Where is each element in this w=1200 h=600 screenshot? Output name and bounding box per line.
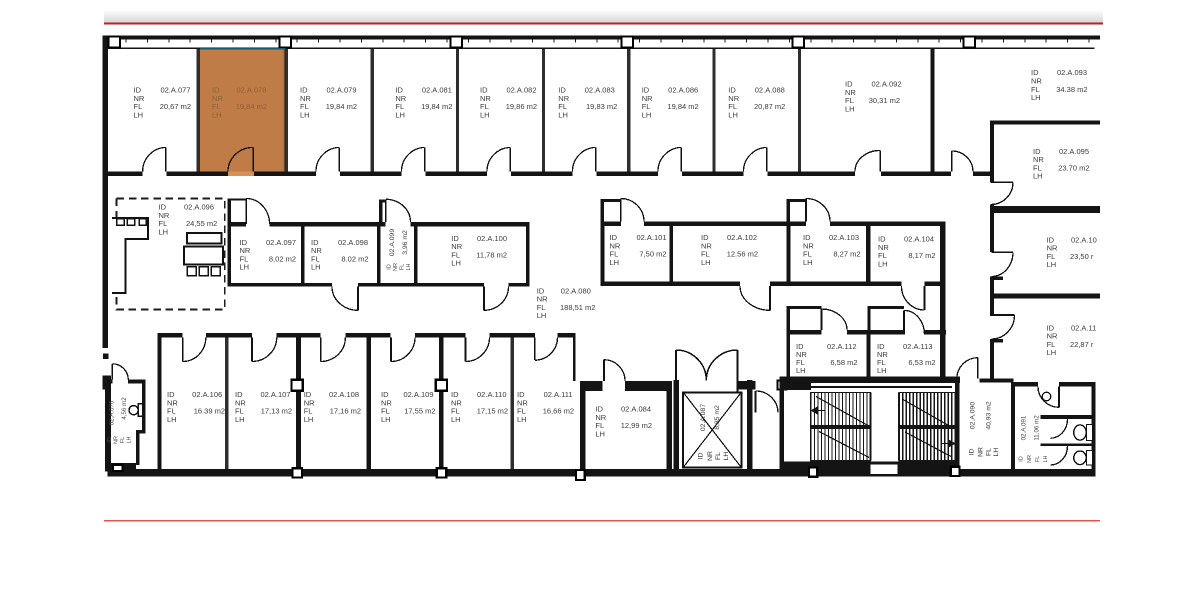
svg-text:02.A.093: 02.A.093	[1057, 68, 1087, 77]
svg-text:LH: LH	[1033, 172, 1043, 181]
svg-text:22,87 r: 22,87 r	[1070, 340, 1094, 349]
svg-text:LH: LH	[134, 111, 144, 120]
svg-text:02.A.111: 02.A.111	[544, 390, 573, 399]
svg-text:LH: LH	[480, 111, 490, 120]
svg-text:LH: LH	[240, 263, 250, 272]
svg-text:40,93 m2: 40,93 m2	[985, 401, 992, 430]
svg-text:02.A.077: 02.A.077	[160, 86, 190, 95]
svg-text:02.A.107: 02.A.107	[260, 390, 290, 399]
svg-text:LH: LH	[877, 366, 887, 375]
svg-text:19,84 m2: 19,84 m2	[421, 102, 452, 111]
svg-text:LH: LH	[127, 436, 133, 443]
svg-text:8,02 m2: 8,02 m2	[269, 254, 296, 263]
svg-text:LH: LH	[1047, 348, 1057, 357]
svg-text:LH: LH	[1031, 93, 1041, 102]
svg-text:02.A.106: 02.A.106	[192, 390, 222, 399]
svg-text:6,58 m2: 6,58 m2	[830, 358, 857, 367]
svg-text:LH: LH	[701, 258, 711, 267]
svg-text:34.38 m2: 34.38 m2	[1056, 85, 1087, 94]
svg-text:NR: NR	[977, 447, 984, 457]
svg-text:LH: LH	[642, 111, 652, 120]
svg-text:NR: NR	[707, 451, 714, 461]
svg-text:02.A.088: 02.A.088	[755, 86, 785, 95]
svg-text:LH: LH	[728, 111, 738, 120]
svg-text:LH: LH	[235, 415, 245, 424]
svg-text:11,06 m2: 11,06 m2	[1033, 415, 1040, 441]
svg-text:19,86 m2: 19,86 m2	[506, 102, 537, 111]
svg-text:LH: LH	[595, 430, 605, 439]
svg-text:LH: LH	[451, 259, 461, 268]
svg-text:LH: LH	[159, 228, 169, 237]
svg-text:LH: LH	[311, 263, 321, 272]
svg-text:11,78 m2: 11,78 m2	[476, 250, 507, 259]
svg-text:NR: NR	[1027, 455, 1033, 463]
svg-text:LH: LH	[212, 111, 222, 120]
svg-text:16.39 m2: 16.39 m2	[194, 407, 225, 416]
svg-text:ID: ID	[1019, 456, 1025, 462]
svg-text:ID: ID	[387, 264, 393, 270]
svg-text:02.A.10: 02.A.10	[1071, 235, 1097, 244]
svg-text:02.A.102: 02.A.102	[727, 233, 757, 242]
svg-text:LH: LH	[723, 452, 730, 461]
svg-text:02.A.099: 02.A.099	[389, 229, 396, 256]
svg-text:02.A.079: 02.A.079	[326, 86, 356, 95]
svg-text:LH: LH	[845, 105, 855, 114]
svg-text:ID: ID	[968, 449, 975, 456]
svg-text:02.A.110: 02.A.110	[477, 390, 506, 399]
svg-text:30,31 m2: 30,31 m2	[869, 96, 900, 105]
svg-text:02.A.081: 02.A.081	[422, 86, 452, 95]
svg-text:02.A.080: 02.A.080	[561, 286, 591, 295]
svg-text:02.A.083: 02.A.083	[585, 86, 615, 95]
svg-text:LH: LH	[1043, 455, 1049, 462]
svg-text:8,35 m2: 8,35 m2	[714, 405, 721, 430]
svg-text:23,50 r: 23,50 r	[1070, 252, 1094, 261]
svg-text:02.A.109: 02.A.109	[403, 390, 433, 399]
svg-text:188,51 m2: 188,51 m2	[560, 303, 595, 312]
svg-text:02.A.11: 02.A.11	[1071, 323, 1096, 332]
svg-text:02.A.091: 02.A.091	[1020, 415, 1027, 440]
svg-text:20,67 m2: 20,67 m2	[160, 102, 191, 111]
svg-text:LH: LH	[406, 263, 412, 270]
svg-text:19,83 m2: 19,83 m2	[586, 102, 617, 111]
svg-text:LH: LH	[803, 258, 813, 267]
svg-text:4,56 m2: 4,56 m2	[121, 397, 128, 420]
svg-text:02.A.078: 02.A.078	[236, 86, 266, 95]
svg-text:LH: LH	[558, 111, 568, 120]
svg-text:02.A.097: 02.A.097	[266, 238, 296, 247]
svg-text:24,55 m2: 24,55 m2	[186, 219, 217, 228]
svg-text:7,50 m2: 7,50 m2	[639, 250, 666, 259]
svg-text:17,13 m2: 17,13 m2	[261, 407, 292, 416]
svg-text:8.02 m2: 8.02 m2	[341, 254, 368, 263]
svg-text:LH: LH	[167, 415, 177, 424]
svg-text:FL: FL	[400, 264, 406, 270]
svg-text:LH: LH	[993, 448, 1000, 457]
svg-text:6,53 m2: 6,53 m2	[908, 358, 935, 367]
svg-text:12.56 m2: 12.56 m2	[727, 250, 758, 259]
svg-text:LH: LH	[796, 366, 806, 375]
svg-text:FL: FL	[120, 437, 126, 443]
svg-text:02.A.100: 02.A.100	[477, 234, 507, 243]
svg-text:LH: LH	[517, 415, 527, 424]
svg-text:02.A.112: 02.A.112	[827, 342, 856, 351]
svg-text:23.70 m2: 23.70 m2	[1058, 163, 1089, 172]
svg-text:17,15 m2: 17,15 m2	[477, 407, 508, 416]
svg-text:02.A.087: 02.A.087	[700, 404, 707, 431]
svg-text:02.A.101: 02.A.101	[636, 233, 666, 242]
svg-text:8,27 m2: 8,27 m2	[833, 250, 860, 259]
svg-text:02.A.095: 02.A.095	[1059, 147, 1089, 156]
svg-text:FL: FL	[715, 452, 722, 460]
svg-text:ID: ID	[698, 453, 705, 460]
svg-text:17,16 m2: 17,16 m2	[330, 407, 361, 416]
svg-text:LH: LH	[1047, 260, 1057, 269]
svg-text:02.A.108: 02.A.108	[329, 390, 359, 399]
svg-text:02.A.104: 02.A.104	[904, 235, 934, 244]
svg-text:LH: LH	[300, 111, 310, 120]
svg-text:02.A.113: 02.A.113	[903, 342, 932, 351]
svg-text:19,84 m2: 19,84 m2	[667, 102, 698, 111]
svg-text:12,99 m2: 12,99 m2	[621, 421, 652, 430]
svg-text:FL: FL	[985, 448, 992, 456]
svg-text:02.A.098: 02.A.098	[338, 238, 368, 247]
svg-text:3,96 m2: 3,96 m2	[402, 230, 409, 255]
svg-text:02.A.092: 02.A.092	[871, 80, 901, 89]
svg-text:02.A.084: 02.A.084	[621, 405, 651, 414]
svg-text:02.A.086: 02.A.086	[668, 86, 698, 95]
svg-text:19,84 m2: 19,84 m2	[236, 102, 267, 111]
svg-text:NR: NR	[393, 263, 399, 271]
svg-text:02.A.082: 02.A.082	[506, 86, 536, 95]
svg-text:17,55 m2: 17,55 m2	[404, 407, 435, 416]
svg-text:LH: LH	[381, 415, 391, 424]
svg-text:FL: FL	[1035, 456, 1041, 462]
svg-text:LH: LH	[395, 111, 405, 120]
svg-text:19,84 m2: 19,84 m2	[326, 102, 357, 111]
svg-text:LH: LH	[304, 415, 314, 424]
svg-text:02.A.096: 02.A.096	[184, 203, 214, 212]
svg-text:LH: LH	[451, 415, 461, 424]
svg-text:NR: NR	[114, 436, 120, 444]
svg-text:8,17 m2: 8,17 m2	[908, 251, 935, 260]
svg-text:02.A.103: 02.A.103	[829, 233, 859, 242]
svg-text:20,87 m2: 20,87 m2	[754, 102, 785, 111]
svg-text:ID: ID	[107, 437, 113, 443]
svg-text:LH: LH	[537, 311, 547, 320]
svg-text:02.A.090: 02.A.090	[969, 402, 976, 429]
svg-text:02.A.076: 02.A.076	[109, 400, 116, 425]
svg-text:LH: LH	[878, 259, 888, 268]
svg-text:16,66 m2: 16,66 m2	[543, 407, 574, 416]
svg-text:LH: LH	[610, 258, 620, 267]
